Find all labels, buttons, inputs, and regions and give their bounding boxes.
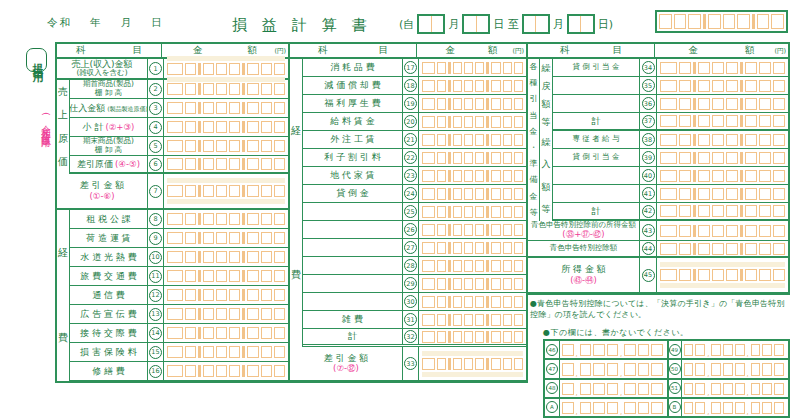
- label-line: 荷 造 運 賃: [86, 233, 131, 243]
- amount-input[interactable]: [657, 241, 788, 256]
- amount-input[interactable]: [419, 257, 526, 274]
- digit-cell: [185, 251, 196, 263]
- digit-cell: [437, 80, 446, 92]
- amount-input[interactable]: [419, 185, 526, 202]
- digit-cell: [216, 346, 227, 358]
- digit-cell: [477, 16, 489, 32]
- digit-cell: [247, 251, 258, 263]
- row-label: 地 代 家 賃: [330, 170, 375, 180]
- digit-cell: [514, 80, 523, 92]
- amount-input[interactable]: [419, 95, 526, 112]
- digit-cell: [167, 83, 183, 95]
- digit-cell: [464, 116, 473, 128]
- digit-cell: [185, 185, 196, 197]
- digit-cell: [698, 152, 710, 164]
- amount-input[interactable]: [419, 293, 526, 310]
- number-badge: 7: [149, 185, 162, 198]
- digit-cell: [503, 278, 512, 290]
- digit-cell: [422, 134, 435, 146]
- amount-input[interactable]: [419, 311, 526, 328]
- digit-cell: [679, 170, 691, 182]
- amount-input[interactable]: [419, 167, 526, 184]
- row-label-paren: (製品製造原価): [107, 106, 148, 113]
- digit-cell: [203, 327, 214, 339]
- row-label-cell: 売上(収入)金額(雑収入を含む): [57, 59, 148, 78]
- band-char: 費: [58, 333, 68, 343]
- office-grid-row: A,,B,,: [545, 399, 788, 416]
- number-badge: 26: [404, 223, 417, 236]
- comma-separator: [486, 314, 489, 326]
- digit-cell: [745, 269, 757, 281]
- digit-cell: [216, 251, 227, 263]
- amount-input[interactable]: [419, 149, 526, 166]
- digit-cell: [773, 62, 785, 74]
- comma-separator: [448, 331, 451, 343]
- amount-input[interactable]: [657, 203, 788, 219]
- digit-cell: [464, 80, 473, 92]
- amount-input[interactable]: [164, 267, 288, 285]
- number-badge: A: [546, 401, 558, 413]
- digit-cell: [679, 225, 691, 237]
- row-label: 専 従 者 給 与: [572, 135, 619, 144]
- office-boxes-left: ,,: [560, 399, 667, 416]
- amount-input[interactable]: [419, 221, 526, 238]
- band-char: 戻: [542, 82, 551, 91]
- comma-separator: [486, 188, 489, 200]
- digit-cell: [698, 243, 710, 255]
- digit-cell: [475, 278, 484, 290]
- digit-cell: [453, 242, 462, 254]
- row-label-cell: 租 税 公 課: [70, 210, 148, 228]
- digit-cell: [514, 331, 523, 343]
- digit-cell: [660, 269, 677, 281]
- digit-cell: [261, 365, 272, 377]
- comma-separator: [198, 251, 201, 263]
- row-label-cell: 給 料 賃 金: [303, 113, 403, 130]
- row-formula: (①-⑥): [90, 192, 115, 202]
- amount-input[interactable]: [657, 113, 788, 129]
- digit-cell: [185, 232, 196, 244]
- digit-cell: [274, 140, 285, 152]
- digit-cell: [167, 63, 183, 75]
- band-char: 引: [530, 95, 538, 103]
- comma-mark: ,: [576, 391, 579, 395]
- label-line: 給 料 賃 金: [330, 116, 375, 126]
- comma-separator: [448, 152, 451, 164]
- digit-cell: [475, 62, 484, 74]
- digit-cell: [773, 152, 785, 164]
- number-badge: 30: [404, 295, 417, 308]
- table-row-2: 期首商品(製品)棚 卸 高2: [57, 80, 288, 99]
- digit-cell: [581, 16, 593, 32]
- digit-cell: [660, 80, 677, 92]
- amount-input[interactable]: [419, 131, 526, 148]
- row-label: 差引原価: [77, 159, 113, 169]
- digit-cell: [491, 170, 500, 182]
- digit-cell: [503, 206, 512, 218]
- digit-cell: [491, 278, 500, 290]
- label-line: 仕入金額(製品製造原価): [70, 103, 148, 113]
- digit-cell: [726, 80, 738, 92]
- row-label: 青色申告特別控除額: [550, 244, 618, 253]
- digit-cell: [562, 344, 574, 356]
- digit-row: [167, 251, 285, 263]
- digit-cell: [491, 80, 500, 92]
- period-month2-input[interactable]: [522, 14, 550, 34]
- digit-cell: [167, 270, 183, 282]
- comma-mark: ,: [707, 410, 710, 414]
- row-label: 荷 造 運 賃: [86, 233, 131, 243]
- digit-cell: [453, 314, 462, 326]
- amount-input[interactable]: [164, 99, 288, 117]
- amount-input[interactable]: [164, 229, 288, 247]
- digit-cell: [247, 346, 258, 358]
- digit-cell: [660, 243, 677, 255]
- row-number-cell: 5: [148, 137, 164, 155]
- row-number-cell: 36: [640, 95, 657, 112]
- amount-input[interactable]: [164, 248, 288, 266]
- comma-separator: [740, 115, 743, 127]
- office-boxes-left: ,,: [560, 341, 667, 358]
- digit-row: [422, 278, 523, 290]
- digit-cell: [247, 83, 258, 95]
- digit-row: [167, 270, 285, 282]
- amount-input[interactable]: [164, 343, 288, 361]
- digit-cell: [464, 224, 473, 236]
- row-label-cell: 水 道 光 熱 費: [70, 248, 148, 266]
- digit-cell: [274, 63, 285, 75]
- digit-cell: [274, 270, 285, 282]
- digit-cell: [437, 170, 446, 182]
- amount-input[interactable]: [164, 324, 288, 342]
- digit-row: [660, 98, 785, 110]
- blank-strip: [167, 56, 285, 61]
- comma-mark: ,: [620, 372, 623, 376]
- row-number-cell: 32: [403, 329, 419, 344]
- digit-cell: [745, 62, 757, 74]
- comma-separator: [486, 62, 489, 74]
- digit-cell: [453, 278, 462, 290]
- amount-input[interactable]: [419, 113, 526, 130]
- amount-input[interactable]: [657, 185, 788, 202]
- digit-cell: [514, 358, 523, 370]
- digit-row: [167, 232, 285, 244]
- amount-input[interactable]: [164, 305, 288, 323]
- amount-input[interactable]: [657, 167, 788, 184]
- amount-input[interactable]: [164, 210, 288, 228]
- office-number-cell: 46: [545, 341, 560, 358]
- row-label-cell: 貸 倒 引 当 金: [553, 59, 640, 76]
- band-char: 等: [530, 209, 538, 217]
- digit-cell: [464, 278, 473, 290]
- amount-input[interactable]: [419, 77, 526, 94]
- comma-separator: [198, 308, 201, 320]
- label-line: 消 耗 品 費: [330, 62, 375, 72]
- number-badge: 32: [404, 330, 417, 343]
- digit-cell: [679, 115, 691, 127]
- comma-separator: [198, 185, 201, 197]
- digit-cell: [167, 346, 183, 358]
- digit-cell: [514, 242, 523, 254]
- number-badge: 43: [642, 224, 655, 237]
- table-row-12: 通 信 費12: [57, 286, 288, 305]
- amount-input[interactable]: [164, 174, 288, 208]
- number-badge: 31: [404, 313, 417, 326]
- amount-input[interactable]: [419, 275, 526, 292]
- digit-cell: [491, 242, 500, 254]
- row-number-cell: 41: [640, 185, 657, 202]
- comma-separator: [486, 116, 489, 128]
- digit-cell: [698, 62, 710, 74]
- period-month1-input[interactable]: [417, 14, 445, 34]
- reserves-and-income-table: 科 目金 額(円)貸 倒 引 当 金343536計37専 従 者 給 与38貸 …: [528, 42, 790, 295]
- digit-cell: [185, 365, 196, 377]
- digit-cell: [464, 206, 473, 218]
- digit-cell: [422, 80, 435, 92]
- digit-cell: [638, 402, 650, 414]
- label-line: 地 代 家 賃: [330, 170, 375, 180]
- number-badge: 38: [642, 133, 655, 146]
- digit-cell: [464, 331, 473, 343]
- digit-cell: [712, 98, 724, 110]
- amount-input[interactable]: [657, 77, 788, 94]
- digit-cell: [274, 327, 285, 339]
- row-label-cell: [303, 203, 403, 220]
- digit-cell: [651, 402, 663, 414]
- period-day2-input[interactable]: [567, 14, 595, 34]
- digit-cell: [216, 185, 227, 197]
- digit-cell: [274, 102, 285, 114]
- comma-separator: [242, 102, 245, 114]
- digit-cell: [491, 296, 500, 308]
- row-number-cell: 22: [403, 149, 419, 166]
- digit-cell: [185, 270, 196, 282]
- digit-cell: [475, 331, 484, 343]
- table-row-3: 仕入金額(製品製造原価)3: [57, 99, 288, 118]
- digit-cell: [751, 344, 761, 356]
- digit-cell: [745, 152, 757, 164]
- office-boxes-right: ,,: [682, 399, 789, 416]
- digit-cell: [695, 363, 705, 375]
- label-line: 計: [348, 331, 357, 341]
- table-row-17: 消 耗 品 費17: [290, 59, 526, 77]
- comma-mark: ,: [707, 391, 710, 395]
- number-badge: 15: [149, 346, 162, 359]
- amount-input[interactable]: [657, 258, 788, 292]
- digit-cell: [745, 205, 757, 217]
- digit-cell: [475, 152, 484, 164]
- digit-cell: [759, 80, 771, 92]
- label-line: 差 引 金 額: [324, 353, 369, 363]
- digit-cell: [437, 152, 446, 164]
- digit-cell: [216, 308, 227, 320]
- digit-cell: [422, 242, 435, 254]
- row-formula: (④-⑤): [115, 160, 140, 170]
- digit-cell: [185, 289, 196, 301]
- digit-cell: [745, 80, 757, 92]
- label-line: 所 得 金 額: [561, 264, 606, 274]
- digit-cell: [759, 170, 771, 182]
- digit-cell: [475, 134, 484, 146]
- digit-cell: [167, 327, 183, 339]
- office-boxes-right: ,,: [682, 360, 789, 377]
- table-row-41: 41: [528, 185, 788, 203]
- digit-row: [422, 358, 523, 370]
- comma-separator: [242, 140, 245, 152]
- digit-cell: [229, 63, 240, 75]
- table-row-15: 損 害 保 険 料15: [57, 343, 288, 362]
- digit-cell: [660, 225, 677, 237]
- comma-separator: [448, 358, 451, 370]
- row-formula: (⑦-㉜): [333, 364, 359, 374]
- comma-separator: [448, 314, 451, 326]
- office-boxes-left: ,,: [560, 380, 667, 397]
- digit-cell: [229, 327, 240, 339]
- row-label-cell: [303, 221, 403, 238]
- amount-input[interactable]: [657, 95, 788, 112]
- row-label-cell: [553, 77, 640, 94]
- digit-cell: [437, 314, 446, 326]
- digit-row: [167, 327, 285, 339]
- amount-input[interactable]: [419, 203, 526, 220]
- number-badge: 21: [404, 133, 417, 146]
- digit-cell: [167, 365, 183, 377]
- era-date-line: 令和 年 月 日: [47, 16, 164, 30]
- digit-cell: [491, 116, 500, 128]
- digit-cell: [660, 115, 677, 127]
- reference-number-box[interactable]: [655, 10, 788, 33]
- amount-input[interactable]: [657, 131, 788, 148]
- digit-cell: [261, 140, 272, 152]
- number-badge: 14: [149, 327, 162, 340]
- digit-cell: [660, 62, 677, 74]
- digit-cell: [514, 224, 523, 236]
- digit-cell: [203, 185, 214, 197]
- amount-input[interactable]: [164, 137, 288, 155]
- digit-cell: [712, 225, 724, 237]
- digit-cell: [453, 116, 462, 128]
- digit-cell: [607, 383, 619, 395]
- amount-input[interactable]: [164, 362, 288, 380]
- comma-separator: [198, 83, 201, 95]
- digit-cell: [726, 115, 738, 127]
- digit-cell: [167, 121, 183, 133]
- table-row-26: 26: [290, 221, 526, 239]
- digit-cell: [437, 206, 446, 218]
- amount-input[interactable]: [164, 59, 288, 78]
- number-badge: 27: [404, 241, 417, 254]
- amount-input[interactable]: [419, 239, 526, 256]
- label-line: 減 価 償 却 費: [324, 80, 380, 90]
- digit-cell: [762, 344, 772, 356]
- row-number-cell: 27: [403, 239, 419, 256]
- amount-input[interactable]: [164, 80, 288, 98]
- amount-input[interactable]: [164, 156, 288, 172]
- digit-cell: [216, 365, 227, 377]
- comma-separator: [448, 260, 451, 272]
- table-row-27: 27: [290, 239, 526, 257]
- digit-cell: [475, 188, 484, 200]
- row-number-cell: 29: [403, 275, 419, 292]
- digit-cell: [216, 140, 227, 152]
- digit-cell: [216, 327, 227, 339]
- digit-cell: [735, 383, 745, 395]
- amount-input[interactable]: [657, 149, 788, 166]
- row-number-cell: 37: [640, 113, 657, 129]
- office-number-cell: 49: [667, 341, 682, 358]
- digit-cell: [453, 134, 462, 146]
- digit-cell: [712, 170, 724, 182]
- digit-cell: [185, 83, 196, 95]
- digit-cell: [261, 327, 272, 339]
- amount-input[interactable]: [164, 118, 288, 136]
- band-char: ・: [530, 144, 538, 152]
- table-row-30: 30: [290, 293, 526, 311]
- row-number-cell: 3: [148, 99, 164, 117]
- digit-cell: [759, 98, 771, 110]
- amount-input[interactable]: [164, 286, 288, 304]
- amount-input[interactable]: [419, 59, 526, 76]
- digit-cell: [274, 308, 285, 320]
- row-label: 通 信 費: [92, 290, 125, 300]
- office-number-cell: 50: [667, 360, 682, 377]
- comma-separator: [448, 206, 451, 218]
- row-label-cell: 計: [553, 203, 640, 219]
- blank-strip: [422, 372, 523, 377]
- digit-cell: [185, 346, 196, 358]
- amount-input[interactable]: [657, 59, 788, 76]
- digit-cell: [247, 213, 258, 225]
- digit-cell: [464, 152, 473, 164]
- digit-row: [422, 134, 523, 146]
- digit-cell: [679, 205, 691, 217]
- digit-cell: [261, 289, 272, 301]
- row-label: 差 引 金 額: [80, 180, 125, 190]
- digit-cell: [216, 121, 227, 133]
- digit-cell: [261, 158, 272, 170]
- digit-cell: [514, 278, 523, 290]
- label-line: 広 告 宣 伝 費: [80, 309, 136, 319]
- digit-cell: [247, 327, 258, 339]
- row-number-cell: 40: [640, 167, 657, 184]
- digit-cell: [660, 98, 677, 110]
- table-row-45: 所 得 金 額(㊸-㊹)45: [528, 258, 788, 293]
- row-label-line2: 棚 卸 高: [95, 146, 122, 155]
- digit-cell: [247, 308, 258, 320]
- row-label: 所 得 金 額: [561, 264, 606, 274]
- digit-cell: [723, 14, 736, 29]
- digit-cell: [437, 358, 446, 370]
- amount-input[interactable]: [657, 221, 788, 240]
- amount-input[interactable]: [419, 329, 526, 344]
- digit-row: [422, 170, 523, 182]
- period-day1-input[interactable]: [462, 14, 490, 34]
- number-badge: 5: [149, 140, 162, 153]
- period-close-label: 日): [598, 17, 613, 32]
- digit-cell: [475, 224, 484, 236]
- digit-cell: [229, 270, 240, 282]
- label-line: 水 道 光 熱 費: [80, 252, 136, 262]
- digit-cell: [185, 327, 196, 339]
- digit-cell: [708, 14, 721, 29]
- number-badge: 19: [404, 97, 417, 110]
- digit-row: [167, 213, 285, 225]
- digit-cell: [712, 134, 724, 146]
- row-label-cell: 貸 倒 金: [303, 185, 403, 202]
- amount-input[interactable]: [419, 347, 526, 380]
- digit-cell: [167, 251, 183, 263]
- digit-cell: [274, 121, 285, 133]
